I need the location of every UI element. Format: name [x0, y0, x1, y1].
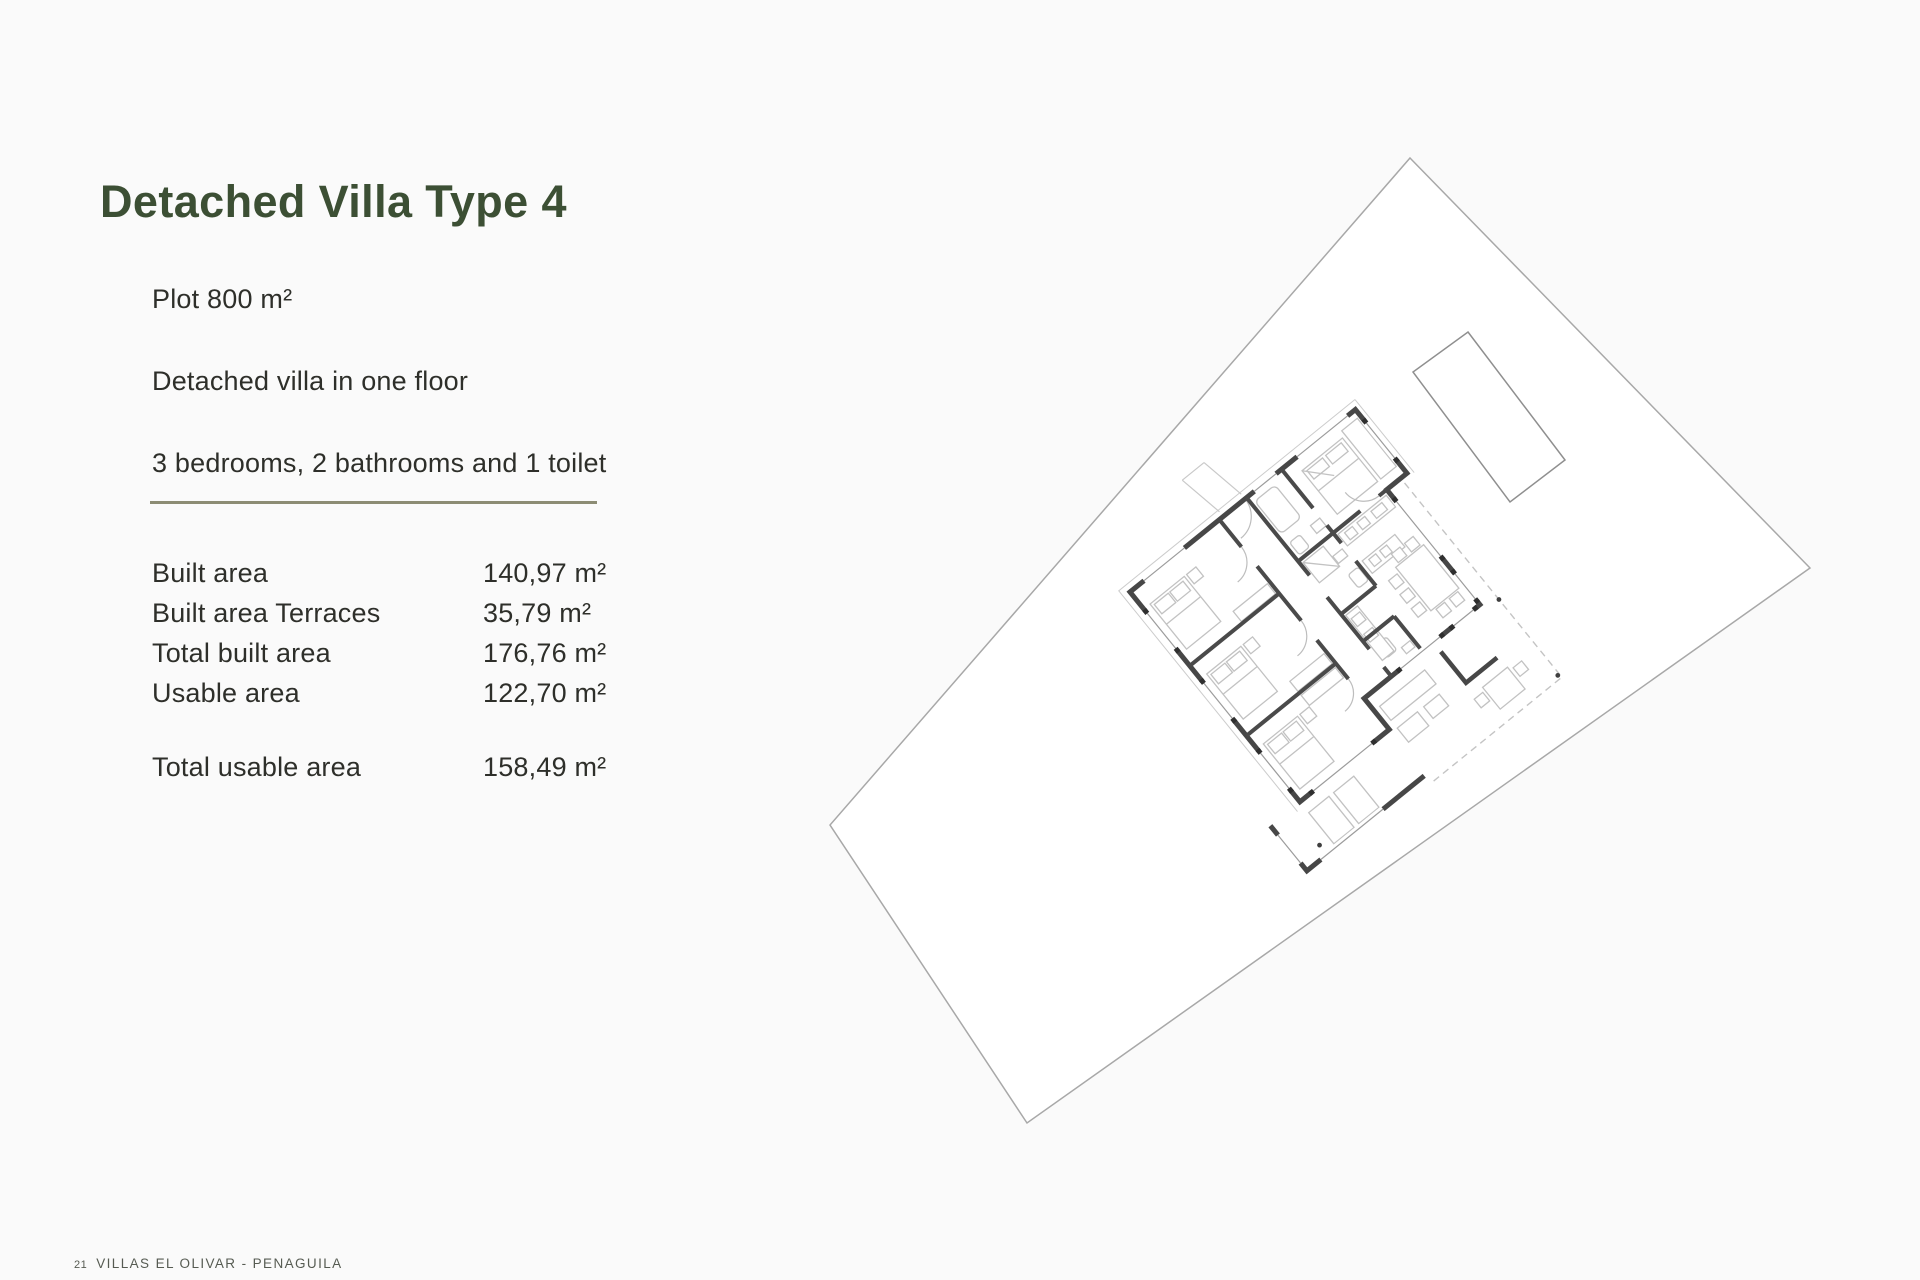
site-plan [0, 0, 1920, 1280]
footer: 21 VILLAS EL OLIVAR - PENAGUILA [74, 1256, 343, 1271]
project-name: VILLAS EL OLIVAR - PENAGUILA [96, 1256, 342, 1271]
page-number: 21 [74, 1259, 87, 1271]
